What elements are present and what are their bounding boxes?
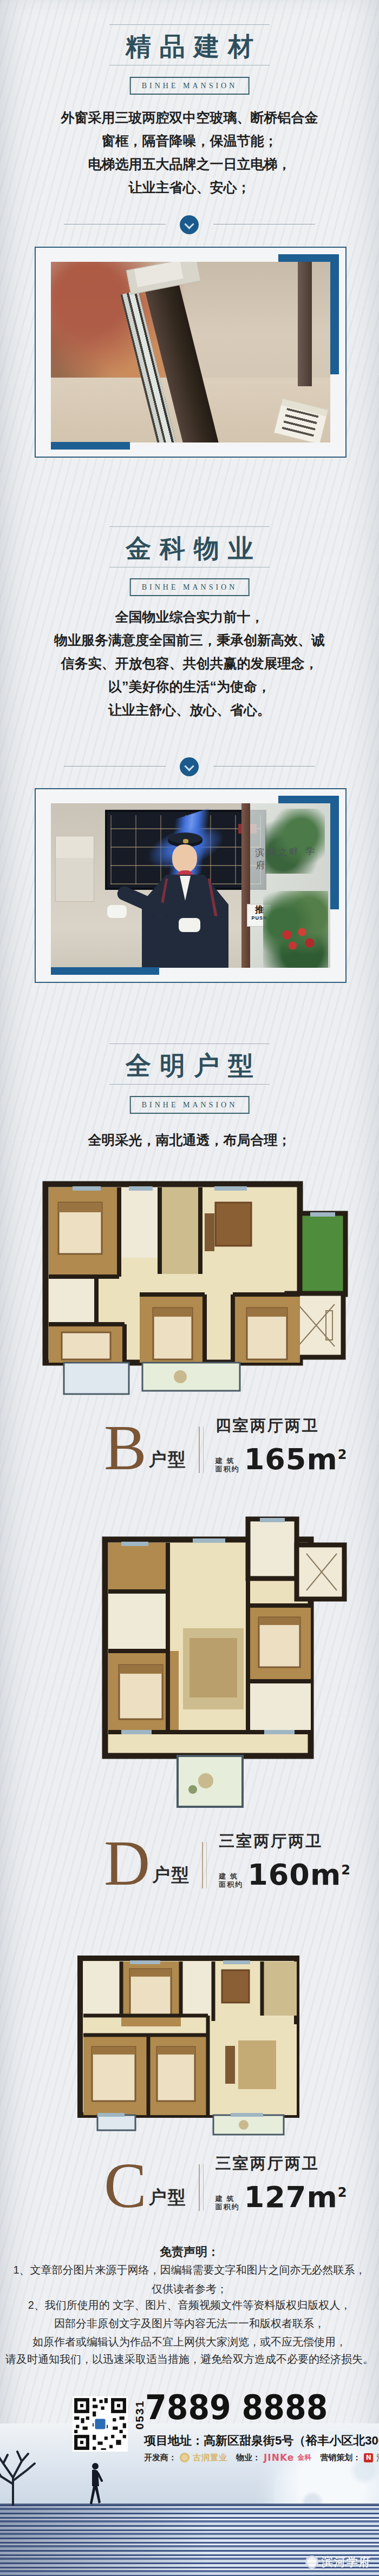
plan-b-letter: B <box>104 1423 147 1473</box>
plan-d-area: 160m2 <box>247 1857 351 1888</box>
second-window-mullion <box>298 262 312 386</box>
brand-badge-3: BINHE MANSION <box>130 1096 250 1114</box>
plan-label-divider <box>199 2164 204 2211</box>
frame-corner-accent-bottom-left <box>51 442 130 450</box>
plan-d-rooms: 三室两厅两卫 <box>219 1831 351 1852</box>
disclaimer-line-3: 2、我们所使用的 文字、图片、音频视频文件等资料版权归版权人， <box>0 2298 379 2313</box>
plan-b-label: B 户型 四室两厅两卫 建 筑 面积约 165m2 <box>104 1415 353 1469</box>
hat-badge <box>183 839 188 843</box>
frame-corner-accent-bottom-left <box>51 967 159 975</box>
header-rule-top-3 <box>109 1043 270 1044</box>
plan-b-area: 165m2 <box>244 1441 348 1473</box>
materials-paragraph: 外窗采用三玻两腔双中空玻璃、断桥铝合金 窗框，隔音降噪，保温节能； 电梯选用五大… <box>0 106 379 199</box>
disclaimer-line-2: 仅供读者参考； <box>0 2282 379 2296</box>
red-flowers <box>279 927 317 954</box>
chevron-down-icon <box>180 215 199 234</box>
jinke-logo-text: JINKe <box>264 2452 294 2463</box>
plan-c-suffix: 户型 <box>149 2185 187 2210</box>
section-title-materials: 精品建材 <box>0 30 379 64</box>
white-glove-right <box>179 918 200 932</box>
phone-area-code: 0531 <box>133 2392 146 2438</box>
divider-line-right <box>213 224 315 224</box>
disclaimer-line-1: 1、文章部分图片来源于网络，因编辑需要文字和图片之间亦无必然联系， <box>0 2263 379 2277</box>
section-title-property: 金科物业 <box>0 532 379 566</box>
property-paragraph: 全国物业综合实力前十， 物业服务满意度全国前三，秉承创新高效、诚 信务实、开放包… <box>0 605 379 722</box>
concierge-photo: 滨河之畔 学府 推 PUSH <box>51 803 330 968</box>
jinke-suffix: 金科 <box>297 2453 311 2462</box>
header-rule-bottom-3 <box>109 1084 270 1085</box>
walking-person-silhouette <box>84 2462 106 2506</box>
materials-line-1: 外窗采用三玻两腔双中空玻璃、断桥铝合金 <box>0 106 379 129</box>
plan-c-label: C 户型 三室两厅两卫 建 筑 面积约 127m2 <box>104 2153 353 2207</box>
divider-line-left <box>64 766 166 767</box>
disclaimer-heading: 免责声明： <box>0 2244 379 2260</box>
window-photo <box>51 262 330 442</box>
floorplan-d-image <box>69 1515 349 1811</box>
wechat-qr-code <box>73 2396 128 2452</box>
disclaimer-line-6: 请及时通知我们，以迅速采取适当措施，避免给双方造成不必要的经济损失。 <box>0 2352 379 2367</box>
developer-label: 开发商： <box>144 2453 177 2463</box>
property-line-2: 物业服务满意度全国前三，秉承创新高效、诚 <box>0 629 379 652</box>
watermark-logo-icon <box>305 2555 318 2568</box>
header-rule-top-2 <box>109 526 270 527</box>
header-rule-bottom-2 <box>109 567 270 567</box>
area-label-top: 建 筑 <box>215 2195 240 2203</box>
window-photo-frame <box>35 247 347 458</box>
area-label-bottom: 面积约 <box>215 1465 240 1473</box>
bare-tree-silhouette <box>0 2445 56 2506</box>
floorplan-b-image <box>42 1181 349 1398</box>
phone-number: 7889 8888 <box>145 2388 328 2427</box>
property-line-1: 全国物业综合实力前十， <box>0 605 379 629</box>
plan-b-suffix: 户型 <box>149 1448 187 1472</box>
plan-c-letter: C <box>104 2161 147 2211</box>
area-label-top: 建 筑 <box>219 1872 243 1880</box>
plan-d-suffix: 户型 <box>152 1863 190 1887</box>
marketing-name: 浩华地产（济南） <box>376 2453 379 2463</box>
property-management-label: 物业： <box>236 2453 260 2463</box>
disclaimer-line-4: 因部分非原创文字及图片等内容无法一一和版权者联系， <box>0 2316 379 2331</box>
chevron-divider-1 <box>0 215 379 235</box>
marketing-logo-icon: N <box>364 2453 373 2462</box>
plan-d-letter: D <box>104 1839 150 1888</box>
display-stand <box>55 836 94 902</box>
plan-c-area: 127m2 <box>244 2179 348 2211</box>
area-label-top: 建 筑 <box>215 1457 240 1465</box>
white-glove-left <box>107 905 127 918</box>
project-address: 项目地址：高新区甜泉街5号（裕丰小区北300米） <box>144 2433 379 2449</box>
brand-badge-2: BINHE MANSION <box>130 578 250 596</box>
developer-name: 古润置业 <box>193 2453 227 2463</box>
materials-line-2: 窗框，隔音降噪，保温节能； <box>0 129 379 153</box>
header-rule-top-1 <box>109 24 270 25</box>
watermark-text: 滨河学府 <box>322 2554 371 2570</box>
floorplan-c-image <box>76 1954 325 2138</box>
developer-logo-icon <box>180 2453 190 2462</box>
section-title-floorplans: 全明户型 <box>0 1049 379 1083</box>
disclaimer-line-5: 如原作者或编辑认为作品不宜上网供大家浏览，或不应无偿使用， <box>0 2335 379 2349</box>
plan-label-divider <box>199 1426 204 1473</box>
plan-label-divider <box>202 1842 207 1888</box>
divider-line-left <box>64 224 166 224</box>
divider-line-right <box>213 766 315 767</box>
chevron-divider-2 <box>0 757 379 777</box>
partner-logos-row: 开发商： 古润置业 物业： JINKe 金科 营销策划： N 浩华地产（济南） <box>144 2452 379 2463</box>
area-label-bottom: 面积约 <box>219 1880 243 1888</box>
marketing-label: 营销策划： <box>320 2453 361 2463</box>
area-label-bottom: 面积约 <box>215 2203 240 2211</box>
watermark: 滨河学府 <box>305 2554 371 2570</box>
glass-script-text: 滨河之畔 学府 <box>255 844 328 872</box>
chevron-down-icon <box>180 757 199 776</box>
header-rule-bottom-1 <box>109 65 270 65</box>
plan-c-rooms: 三室两厅两卫 <box>215 2153 348 2175</box>
floorplans-intro: 全明采光，南北通透，布局合理； <box>0 1128 379 1152</box>
promo-page: 精品建材 BINHE MANSION 外窗采用三玻两腔双中空玻璃、断桥铝合金 窗… <box>0 0 379 2576</box>
concierge-face <box>172 844 197 873</box>
brand-badge-1: BINHE MANSION <box>130 77 250 95</box>
jacket-red-piping <box>158 879 217 916</box>
property-line-3: 信务实、开放包容、共创共赢的发展理念， <box>0 652 379 675</box>
materials-line-3: 电梯选用五大品牌之一日立电梯， <box>0 153 379 176</box>
concierge-photo-frame: 滨河之畔 学府 推 PUSH <box>35 788 347 983</box>
property-line-5: 让业主舒心、放心、省心。 <box>0 698 379 722</box>
plan-d-label: D 户型 三室两厅两卫 建 筑 面积约 160m2 <box>104 1831 353 1885</box>
door-frame <box>241 803 250 968</box>
plan-b-rooms: 四室两厅两卫 <box>215 1415 348 1437</box>
property-line-4: 以”美好你的生活“为使命， <box>0 675 379 698</box>
materials-line-4: 让业主省心、安心； <box>0 176 379 199</box>
